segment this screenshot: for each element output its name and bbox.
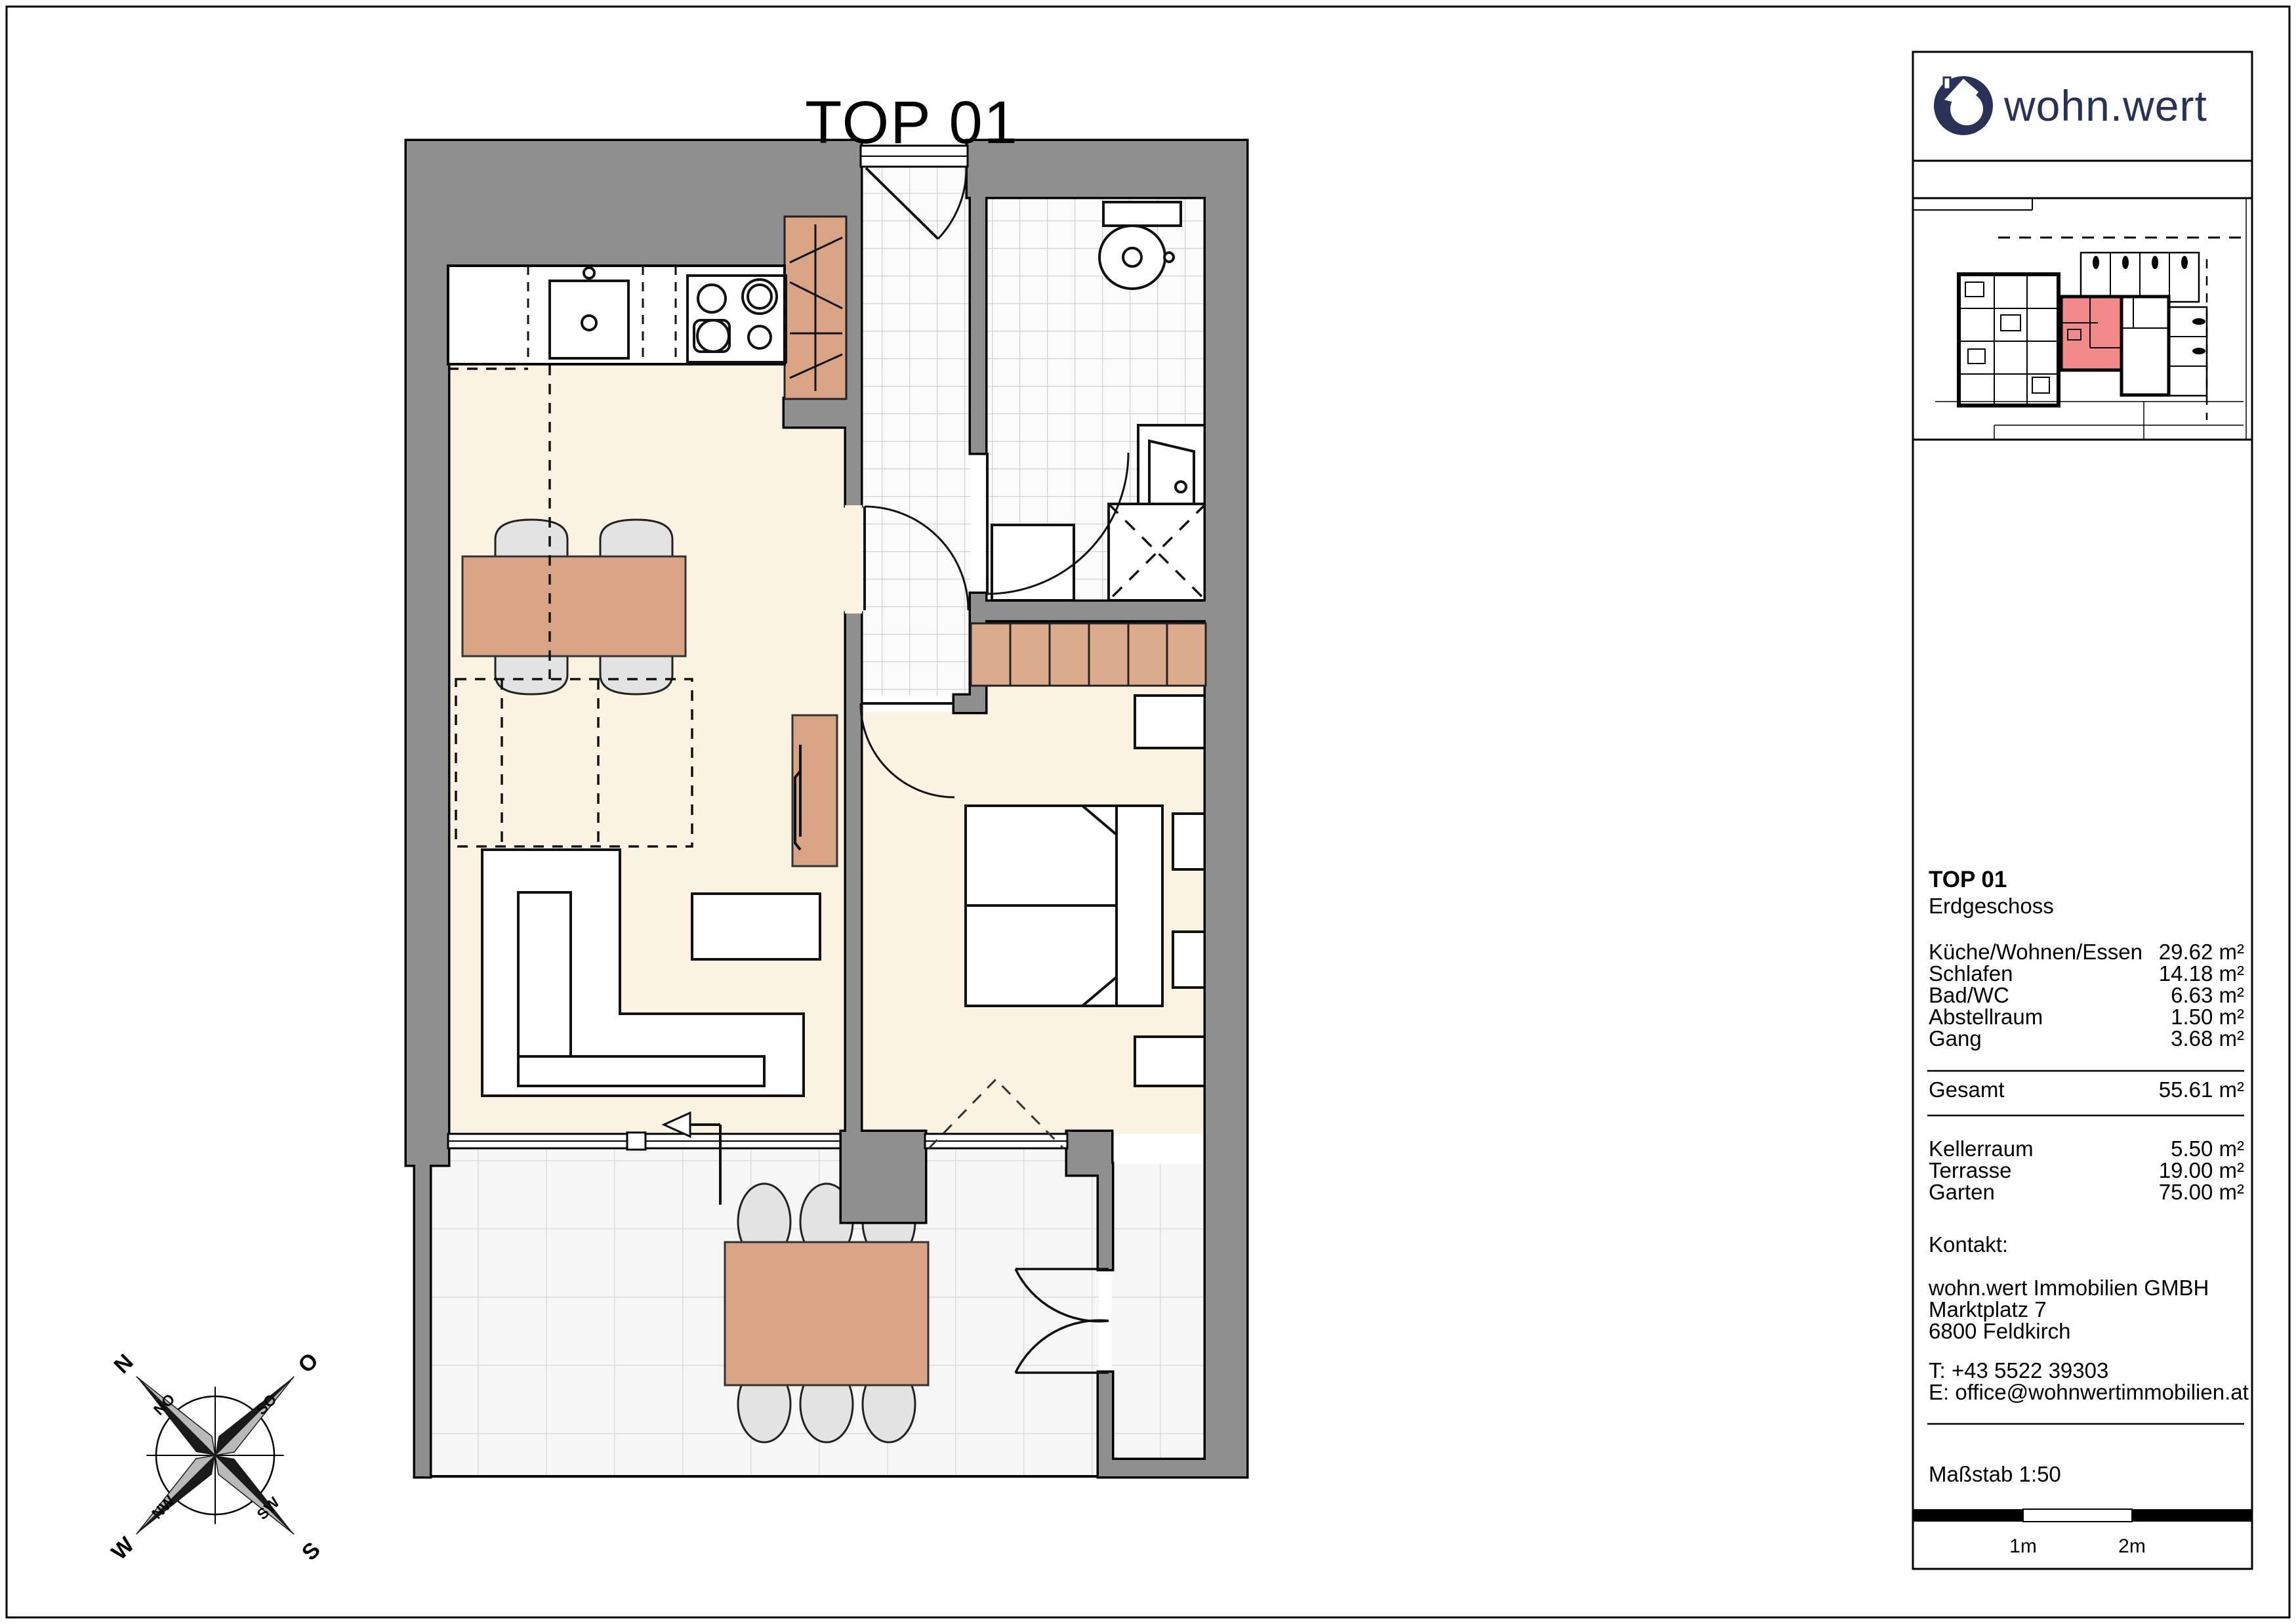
- shower: [1109, 504, 1206, 600]
- floorplan-sheet: TOP 01 N O S W NO SO SW NW woh: [0, 0, 2296, 1624]
- scale-tick-1m: 1m: [2009, 1535, 2037, 1557]
- room-label: Abstellraum: [1929, 1005, 2043, 1029]
- page-title: TOP 01: [805, 89, 1019, 156]
- compass-o: O: [293, 1348, 323, 1378]
- compass-n: N: [110, 1350, 138, 1379]
- dining-table: [462, 556, 686, 656]
- scale-tick-2m: 2m: [2118, 1535, 2146, 1557]
- bed: [966, 806, 1162, 1006]
- contact-city: 6800 Feldkirch: [1929, 1319, 2070, 1343]
- kitchen-sink-icon: [550, 268, 628, 358]
- compass-s: S: [297, 1537, 325, 1566]
- compass-rose-icon: N O S W NO SO SW NW: [14, 1256, 419, 1624]
- panel-unit-floor: Erdgeschoss: [1929, 894, 2054, 918]
- outdoor-label: Garten: [1929, 1180, 1995, 1204]
- room-label: Küche/Wohnen/Essen: [1929, 940, 2142, 964]
- outdoor-area: 5.50 m²: [2171, 1136, 2244, 1161]
- living-window: [448, 1133, 840, 1150]
- wardrobe-row: [971, 623, 1206, 686]
- panel-unit-heading: TOP 01: [1929, 867, 2007, 892]
- outdoor-area: 75.00 m²: [2159, 1180, 2244, 1204]
- coffee-table: [692, 894, 820, 959]
- compass-w: W: [107, 1532, 140, 1565]
- wohnwert-logo-text: wohn.wert: [2003, 81, 2207, 130]
- terrace-table: [725, 1242, 928, 1385]
- total-area: 55.61 m²: [2159, 1077, 2244, 1102]
- outdoor-label: Kellerraum: [1929, 1136, 2034, 1161]
- outdoor-label: Terrasse: [1929, 1158, 2012, 1182]
- total-label: Gesamt: [1929, 1077, 2005, 1102]
- scale-label: Maßstab 1:50: [1929, 1462, 2061, 1486]
- contact-phone: T: +43 5522 39303: [1929, 1358, 2108, 1383]
- room-label: Bad/WC: [1929, 983, 2009, 1007]
- info-panel: wohn.wert: [1913, 52, 2252, 1569]
- room-area: 6.63 m²: [2171, 983, 2244, 1007]
- contact-email: E: office@wohnwertimmobilien.at: [1929, 1380, 2249, 1404]
- contact-heading: Kontakt:: [1929, 1232, 2008, 1257]
- room-label: Schlafen: [1929, 961, 2013, 986]
- outdoor-area: 19.00 m²: [2159, 1158, 2244, 1182]
- sheet-canvas: TOP 01 N O S W NO SO SW NW woh: [0, 0, 2296, 1624]
- washing-machine: [992, 525, 1074, 600]
- terrace-alcove-floor: [1112, 1164, 1206, 1460]
- room-area: 3.68 m²: [2171, 1026, 2244, 1051]
- room-label: Gang: [1929, 1026, 1982, 1051]
- room-corridor-floor: [861, 167, 971, 696]
- highlighted-unit: [2061, 297, 2122, 370]
- floor-plan: [407, 141, 1246, 1476]
- room-area: 1.50 m²: [2171, 1005, 2244, 1029]
- contact-street: Marktplatz 7: [1929, 1297, 2047, 1322]
- room-area: 29.62 m²: [2159, 940, 2244, 964]
- room-area: 14.18 m²: [2159, 961, 2244, 986]
- wohnwert-logo-icon: [1934, 76, 1993, 135]
- contact-company: wohn.wert Immobilien GMBH: [1928, 1276, 2209, 1300]
